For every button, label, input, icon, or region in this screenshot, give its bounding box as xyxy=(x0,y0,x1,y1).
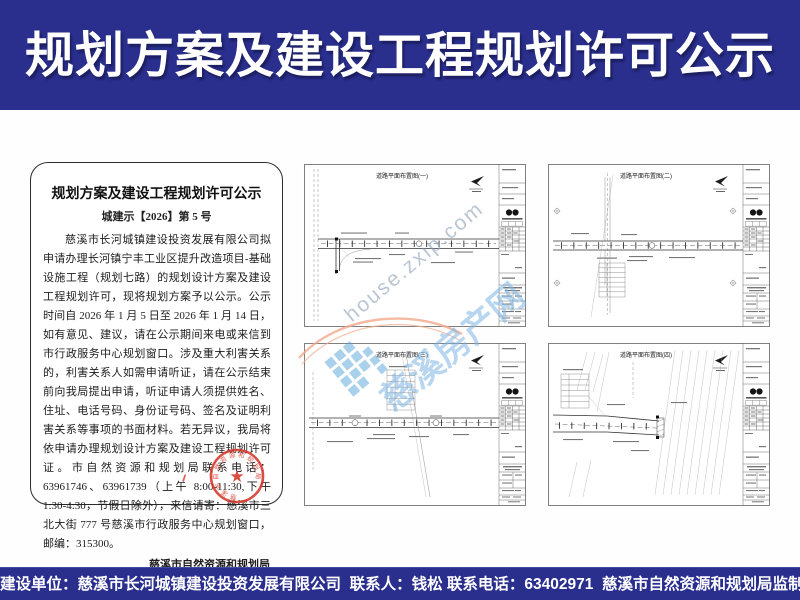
drawing-title: 道路平面布置图(一) xyxy=(376,172,428,180)
footer-credit-line: 建设单位：慈溪市长河城镇建设投资发展有限公司 联系人：钱松 联系电话：63402… xyxy=(0,568,800,600)
drawing-title: 道路平面布置图(四) xyxy=(620,351,672,359)
seal-star-icon: ★ xyxy=(229,467,244,486)
drawing-panel-3: 道路平面布置图(三) xyxy=(303,342,527,507)
notice-doc-number: 城建示【2026】第 5 号 xyxy=(31,208,282,224)
drawing-panel-4: 道路平面布置图(四) xyxy=(547,342,771,507)
bottom-banner: 建设单位：慈溪市长河城镇建设投资发展有限公司 联系人：钱松 联系电话：63402… xyxy=(0,567,800,600)
top-banner: 规划方案及建设工程规划许可公示 xyxy=(0,0,800,110)
official-seal: 慈溪市自然资源和规划局 ★ xyxy=(207,446,267,506)
drawing-title: 道路平面布置图(二) xyxy=(620,172,672,180)
announcement-poster: 规划方案及建设工程规划许可公示 xyxy=(0,0,800,600)
notice-title: 规划方案及建设工程规划许可公示 xyxy=(31,183,282,203)
drawing-panel-1: 道路平面布置图(一) xyxy=(303,163,527,328)
poster-title: 规划方案及建设工程规划许可公示 xyxy=(0,0,800,112)
notice-document: 规划方案及建设工程规划许可公示 城建示【2026】第 5 号 慈溪市长河城镇建设… xyxy=(30,162,283,505)
drawing-panel-2: 道路平面布置图(二) xyxy=(547,163,771,328)
drawing-title: 道路平面布置图(三) xyxy=(376,351,428,359)
